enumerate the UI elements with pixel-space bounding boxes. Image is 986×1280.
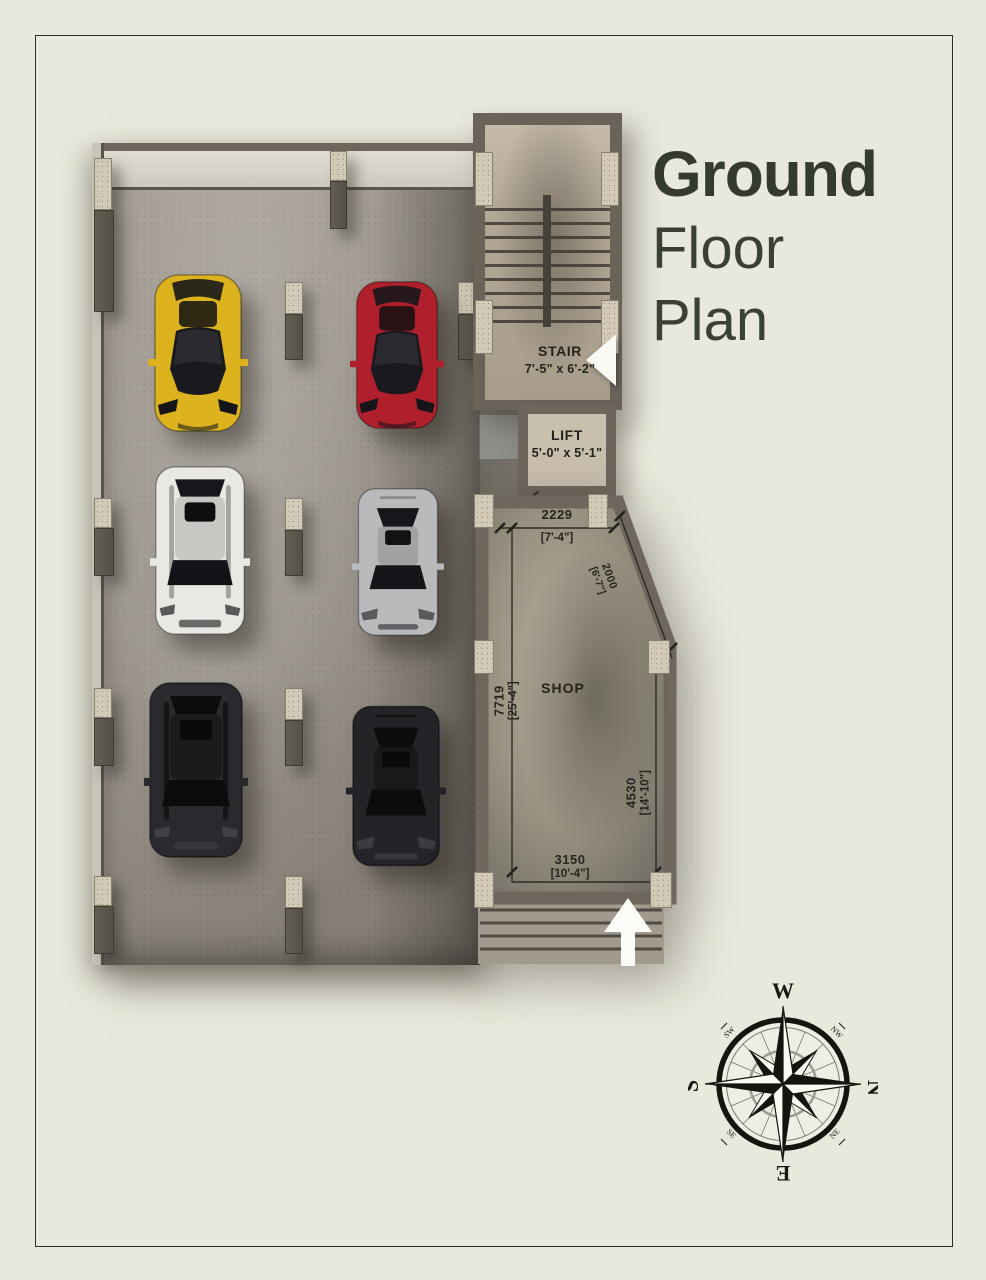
column xyxy=(475,300,493,354)
stair-label: STAIR 7'-5" x 6'-2" xyxy=(500,343,620,376)
column xyxy=(475,152,493,206)
title-line-ground: Ground xyxy=(652,142,877,206)
shop-label: SHOP xyxy=(518,680,608,696)
column xyxy=(94,688,114,766)
dim-shop-left: 7719 [25'-4"] xyxy=(491,641,520,761)
parking-top-wall-edge xyxy=(92,143,480,151)
car-white-suv xyxy=(150,463,250,638)
column xyxy=(94,876,114,954)
dim-shop-bottom: 3150 [10'-4"] xyxy=(513,852,627,881)
compass-letter-e: E xyxy=(776,1161,791,1186)
car-black-sedan xyxy=(346,690,446,882)
car-black-suv xyxy=(144,675,248,865)
dim-shop-width: 2229 xyxy=(500,507,614,523)
stair-center-wall xyxy=(543,195,551,327)
compass-letter-s: S xyxy=(688,1080,703,1092)
title-line-plan: Plan xyxy=(652,292,877,350)
compass-letter-n: N xyxy=(863,1080,878,1096)
compass-rose: W N E S SW NW SE NE xyxy=(688,982,878,1187)
column xyxy=(601,152,619,206)
dim-shop-right: 4530 [14'-10"] xyxy=(623,733,652,853)
page-title: Ground Floor Plan xyxy=(652,142,877,350)
column xyxy=(474,494,494,528)
column xyxy=(285,282,303,360)
compass-letter-w: W xyxy=(772,982,794,1003)
compass-label-sw: SW xyxy=(722,1024,737,1039)
column xyxy=(474,872,494,908)
column xyxy=(94,498,114,576)
title-line-floor: Floor xyxy=(652,220,877,278)
column xyxy=(330,151,347,229)
column xyxy=(650,872,672,908)
column xyxy=(285,688,303,766)
parking-top-wall xyxy=(92,151,480,190)
column xyxy=(648,640,670,674)
column xyxy=(285,498,303,576)
utility-block xyxy=(479,414,521,460)
column xyxy=(94,158,114,312)
car-silver-sedan xyxy=(352,483,444,641)
car-red-sports xyxy=(350,280,444,430)
column xyxy=(285,876,303,954)
car-yellow-sports xyxy=(148,272,248,434)
lift-label: LIFT 5'-0" x 5'-1" xyxy=(520,427,614,460)
